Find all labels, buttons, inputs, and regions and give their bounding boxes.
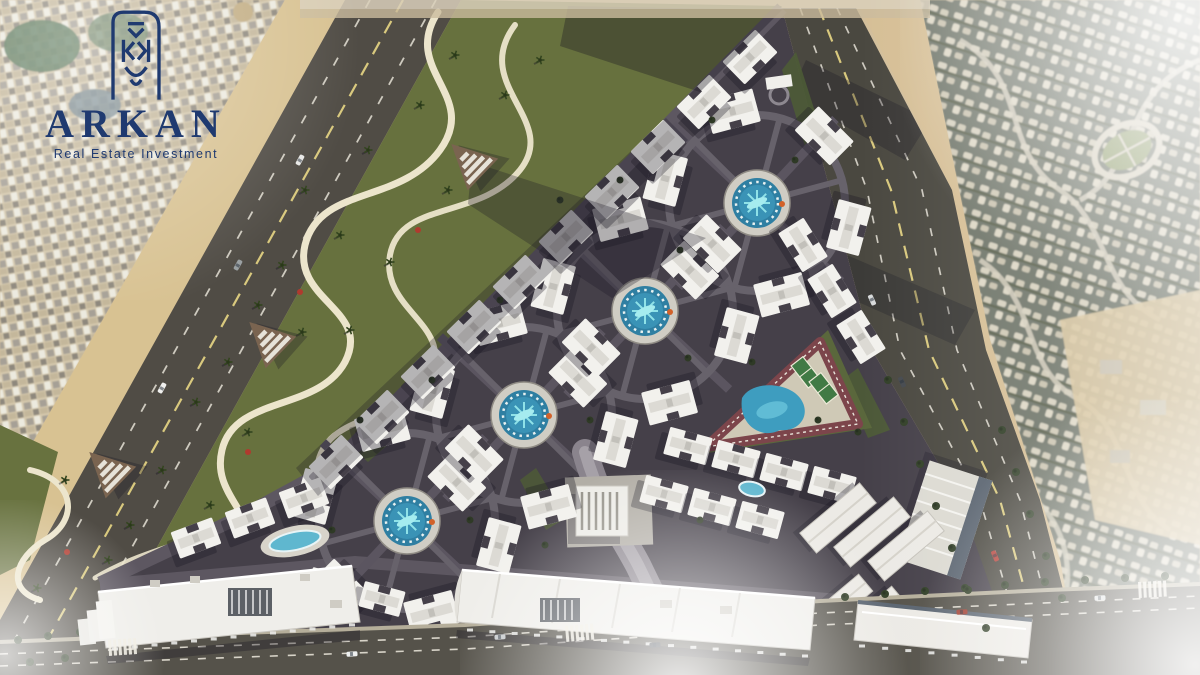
brand-logo: ARKAN Real Estate Investment xyxy=(34,8,238,161)
parked-car xyxy=(231,636,237,639)
pool-plaza xyxy=(491,382,557,448)
parked-car xyxy=(310,628,316,631)
brand-tagline: Real Estate Investment xyxy=(34,147,238,161)
tree xyxy=(709,117,716,124)
tree xyxy=(587,417,594,424)
parked-car xyxy=(290,630,296,633)
tree xyxy=(792,157,799,164)
tree xyxy=(815,417,822,424)
tree xyxy=(749,359,756,366)
tree xyxy=(329,527,336,534)
pool-plaza xyxy=(374,488,440,554)
parked-car xyxy=(171,642,177,645)
arch-chevron-monogram-icon xyxy=(109,8,163,100)
parked-car xyxy=(250,634,256,637)
roof-louver xyxy=(228,588,272,616)
flower-shrub xyxy=(245,449,251,455)
parked-car xyxy=(191,640,197,643)
flower-shrub xyxy=(415,227,421,233)
parked-car xyxy=(329,626,335,629)
aerial-masterplan-image: ARKAN Real Estate Investment xyxy=(0,0,1200,675)
tree xyxy=(685,355,692,362)
parked-car xyxy=(270,632,276,635)
parked-car xyxy=(211,638,217,641)
car xyxy=(346,651,357,657)
parked-car xyxy=(349,624,355,627)
brand-name: ARKAN xyxy=(34,104,238,144)
